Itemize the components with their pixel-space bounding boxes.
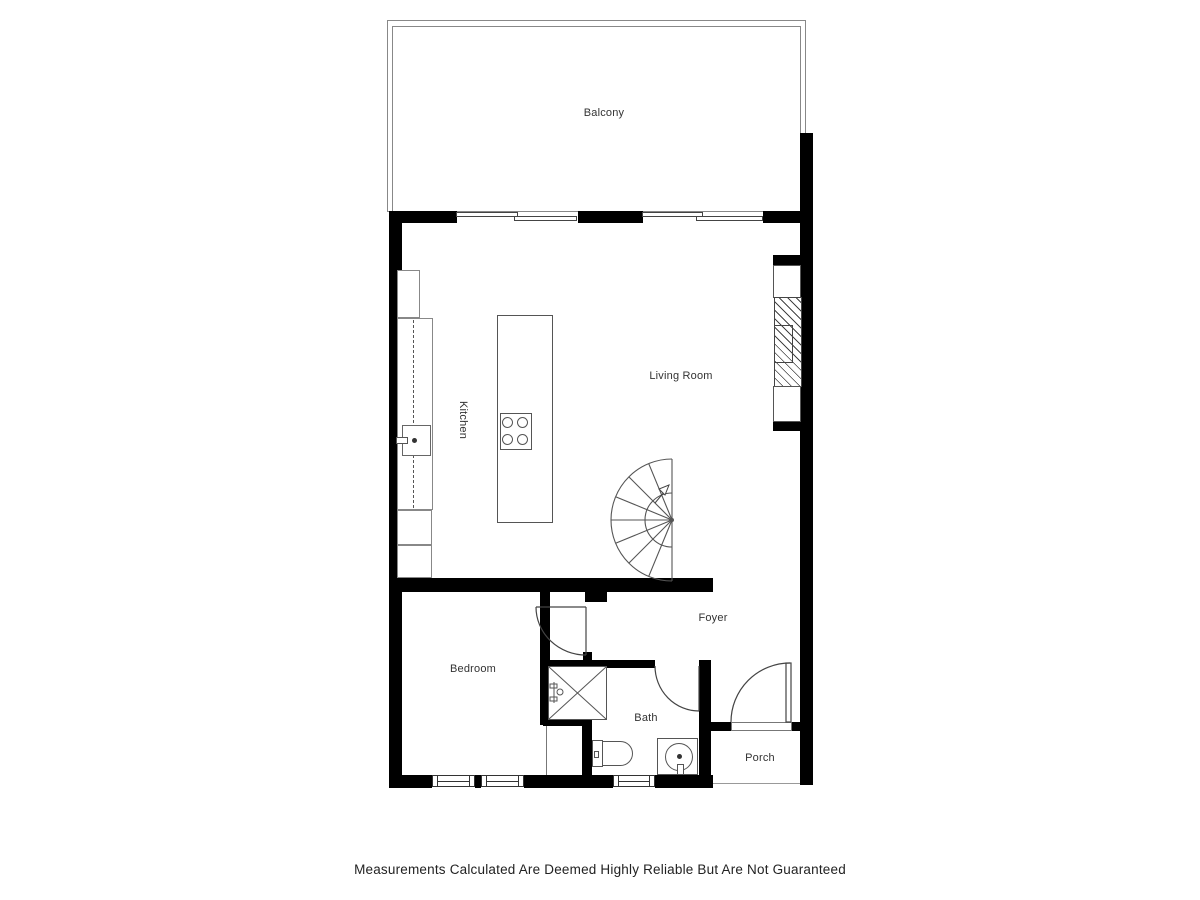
spiral-staircase: [611, 459, 674, 581]
room-label-bath: Bath: [634, 712, 657, 724]
floor-plan-page: Balcony Living Room Kitchen Foyer Bedroo…: [0, 0, 1200, 900]
shower-valve-icon: [550, 682, 563, 703]
room-label-bedroom: Bedroom: [450, 663, 496, 675]
plan-linework: [0, 0, 1200, 900]
bedroom-door: [536, 607, 586, 655]
room-label-foyer: Foyer: [698, 612, 727, 624]
room-label-balcony: Balcony: [584, 107, 625, 119]
bath-door: [655, 666, 699, 711]
room-label-living-room: Living Room: [649, 370, 712, 382]
room-label-porch: Porch: [745, 752, 775, 764]
room-label-kitchen: Kitchen: [457, 401, 469, 439]
front-door: [731, 663, 791, 722]
measurement-disclaimer: Measurements Calculated Are Deemed Highl…: [0, 862, 1200, 877]
